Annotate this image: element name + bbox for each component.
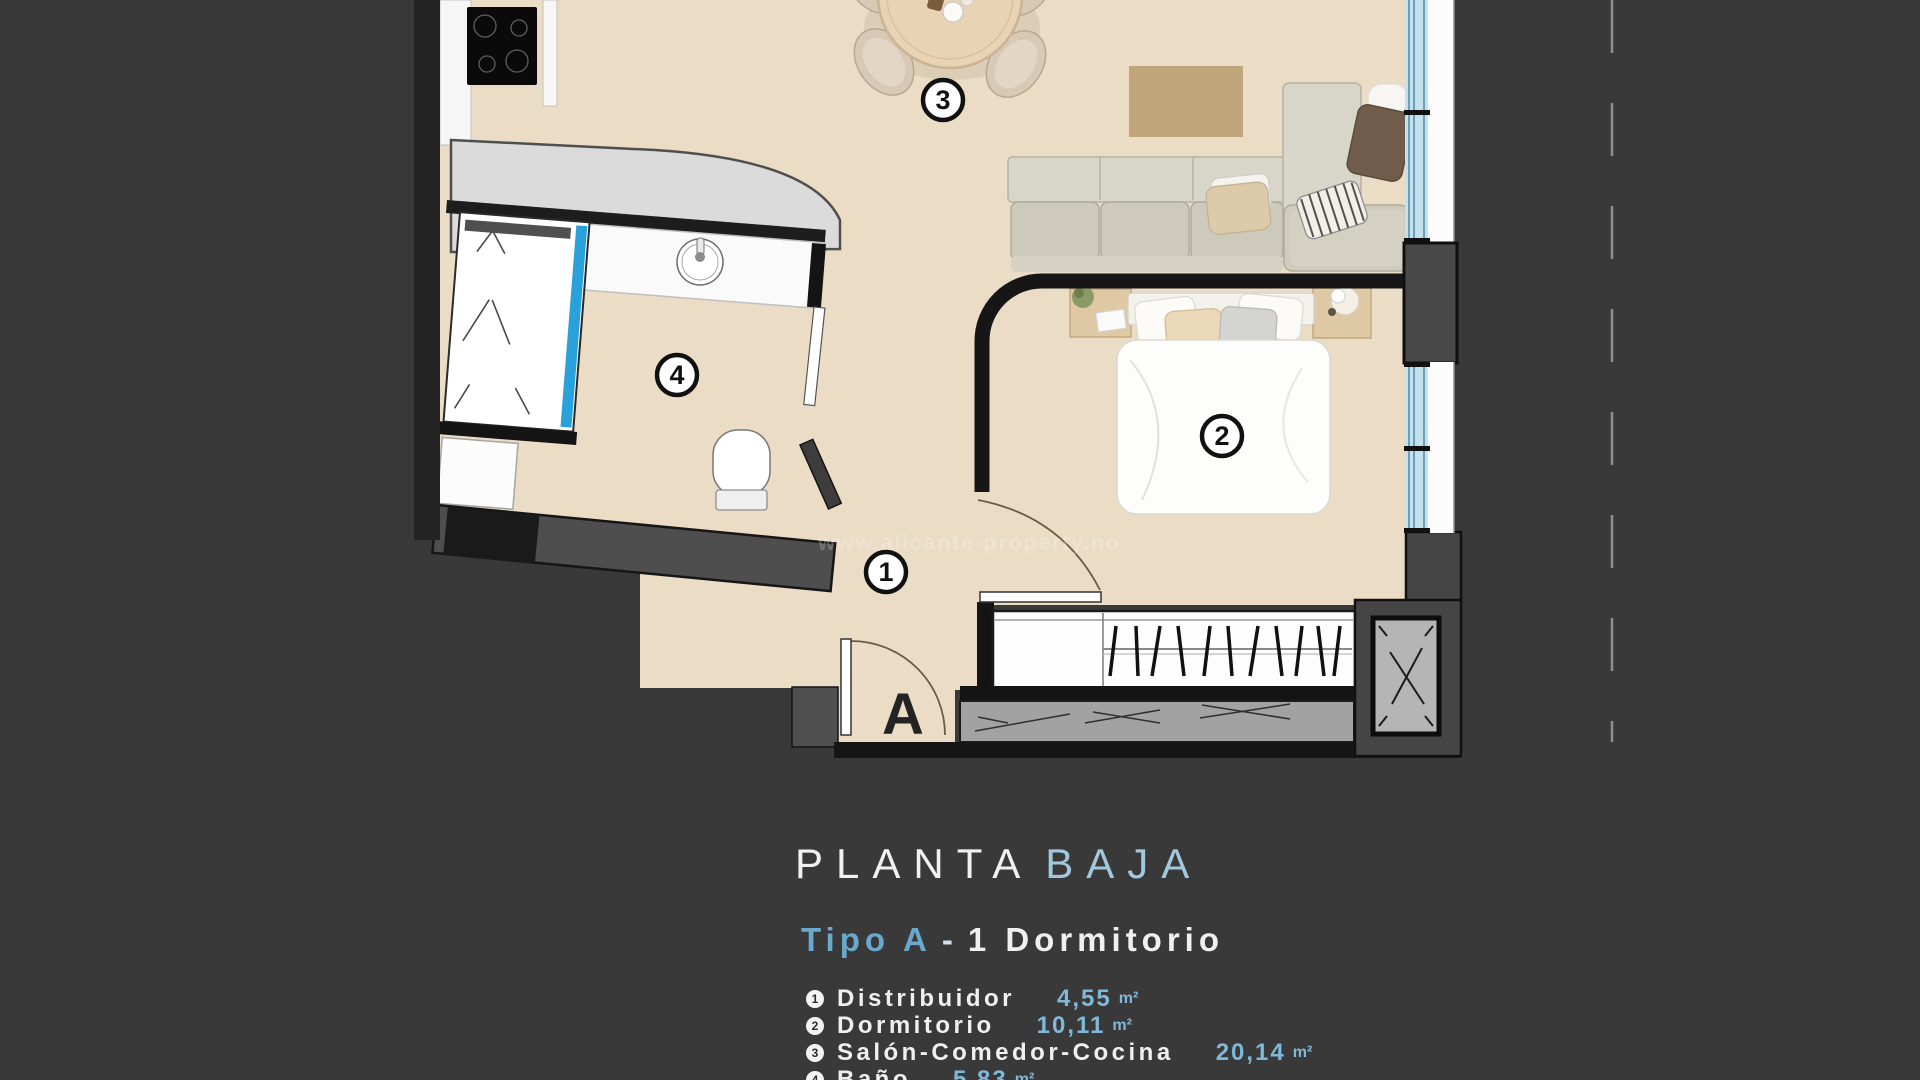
window-bedroom <box>1404 362 1454 533</box>
bathroom-cabinet <box>437 437 518 509</box>
svg-text:3: 3 <box>935 85 950 115</box>
svg-text:1: 1 <box>878 557 893 587</box>
rug <box>1129 66 1243 137</box>
sink-icon <box>677 238 723 285</box>
corridor-band <box>960 701 1354 742</box>
toilet-icon <box>713 430 770 510</box>
cooktop-icon <box>467 7 537 85</box>
double-bed <box>1117 293 1330 514</box>
floorplan-page: www.alicante-property.no 1 2 3 4 A PLANT… <box>0 0 1920 1080</box>
wardrobe <box>993 611 1355 688</box>
left-outer-wall <box>414 0 440 540</box>
room-badge-salon: 3 <box>923 80 963 120</box>
corner-wall-block <box>1406 532 1461 604</box>
facade-pillar <box>1404 243 1457 363</box>
entrance-door-leaf <box>841 639 851 735</box>
window-living <box>1404 0 1454 243</box>
plant-icon <box>1072 286 1094 308</box>
svg-text:2: 2 <box>1214 421 1229 451</box>
room-badge-bano: 4 <box>657 355 697 395</box>
watermark: www.alicante-property.no <box>817 530 1120 555</box>
svg-text:4: 4 <box>669 360 684 390</box>
elevator <box>1373 618 1439 734</box>
bedroom-door-leaf <box>980 592 1101 602</box>
entrance-type-label: A <box>882 682 924 747</box>
room-badge-distribuidor: 1 <box>866 552 906 592</box>
kitchen-counter-strip-right <box>543 0 557 106</box>
hall-wall-below-door <box>977 602 994 688</box>
room-badge-dormitorio: 2 <box>1202 416 1242 456</box>
kitchen-counter-strip <box>440 0 471 145</box>
corridor-top-wall <box>960 686 1355 702</box>
entrance-wall-block <box>792 687 838 747</box>
floorplan-drawing: www.alicante-property.no 1 2 3 4 A <box>0 0 1920 1080</box>
